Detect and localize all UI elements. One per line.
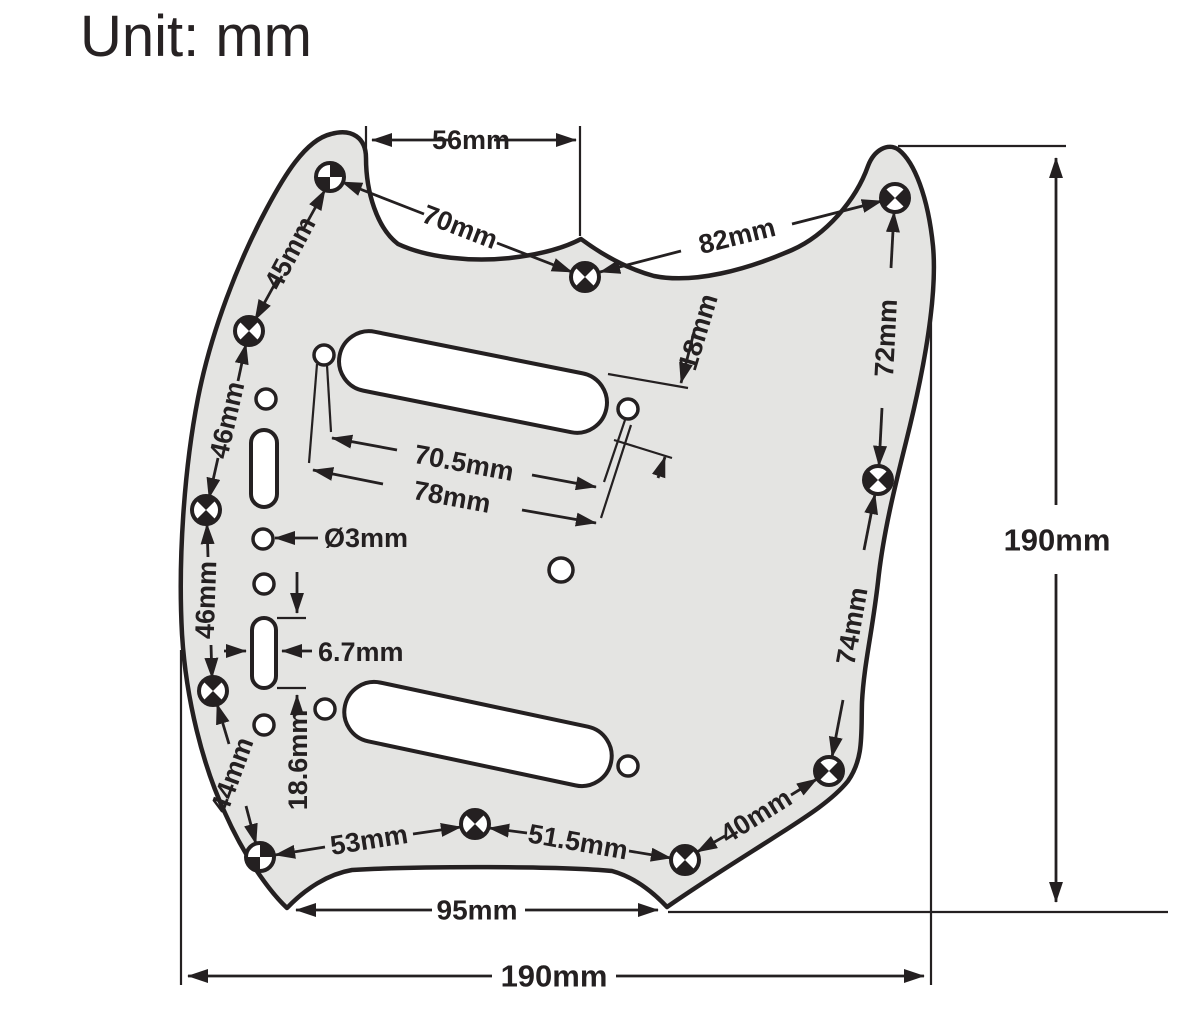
screw-marker-bottom-2 [671, 846, 699, 874]
screw-marker-left-2 [192, 496, 220, 524]
bridge-pickup-screw-hole-right [618, 756, 638, 776]
dimension-label-72mm: 72mm [869, 298, 903, 378]
switch-slot-upper [251, 430, 277, 507]
dimension-label-6-7mm: 6.7mm [318, 637, 404, 667]
screw-marker-right-1 [864, 466, 892, 494]
small-hole [254, 574, 274, 594]
switch-slot-lower [252, 618, 276, 688]
pickguard-dimension-diagram: Unit: mm 56mm 70mm 82mm [0, 0, 1200, 1034]
neck-pickup-screw-hole-left [314, 345, 334, 365]
dimension-label-18-6mm: 18.6mm [283, 710, 313, 811]
small-hole [256, 389, 276, 409]
dimension-label-46mm-b: 46mm [190, 560, 223, 639]
screw-marker-top-right [881, 184, 909, 212]
screw-marker-bottom-1 [461, 810, 489, 838]
screw-marker-top-center [571, 263, 599, 291]
dimension-label-190mm-height: 190mm [1004, 523, 1111, 558]
dimension-label-56mm: 56mm [432, 125, 510, 155]
neck-pickup-screw-hole-right [618, 399, 638, 419]
unit-title: Unit: mm [80, 4, 312, 69]
dimension-label-95mm: 95mm [437, 895, 518, 926]
bridge-pickup-screw-hole-left [315, 699, 335, 719]
center-hole [549, 558, 573, 582]
small-hole [254, 715, 274, 735]
small-hole-3mm [253, 529, 273, 549]
screw-marker-bottom-right [815, 757, 843, 785]
screw-marker-left-1 [235, 317, 263, 345]
screw-marker-left-3 [199, 677, 227, 705]
dimension-label-190mm-width: 190mm [501, 959, 608, 994]
diagram-canvas: Unit: mm 56mm 70mm 82mm [0, 0, 1200, 1034]
dimension-label-3mm-dia: Ø3mm [324, 523, 408, 553]
